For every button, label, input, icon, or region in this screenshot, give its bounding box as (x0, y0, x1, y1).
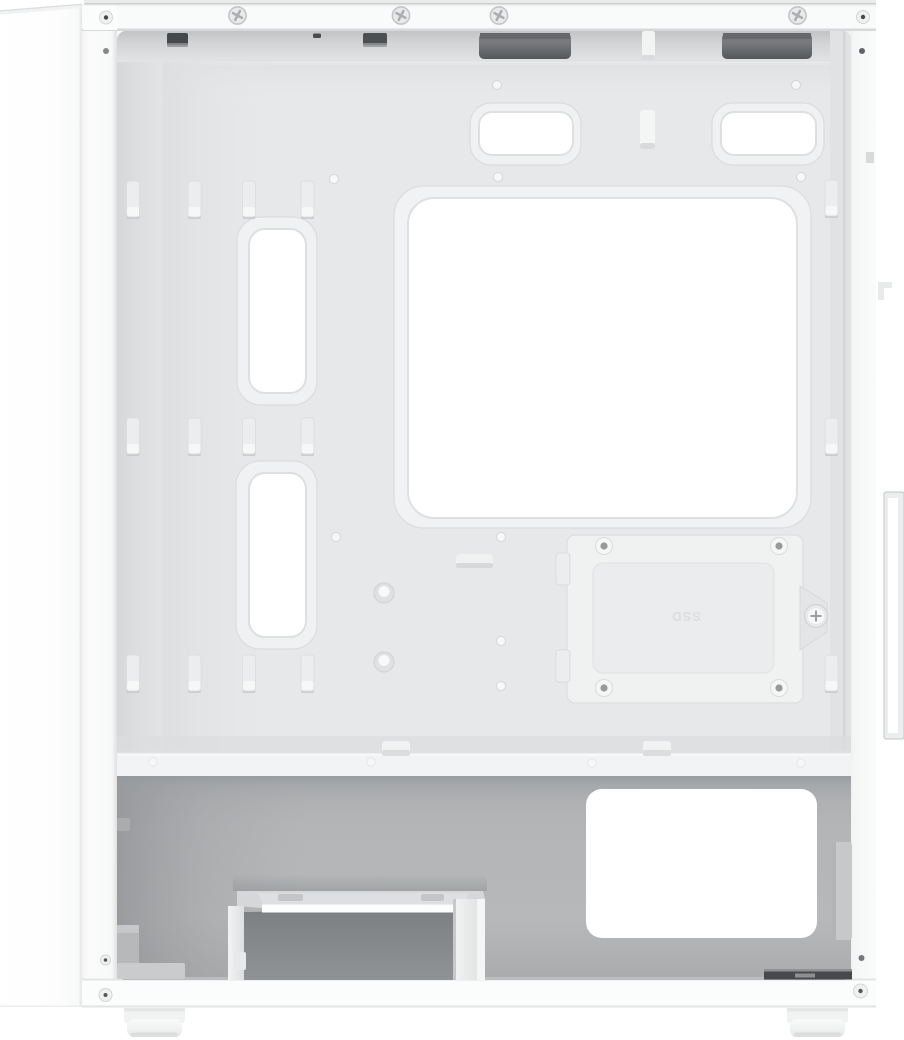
svg-text:SSD: SSD (671, 609, 701, 624)
